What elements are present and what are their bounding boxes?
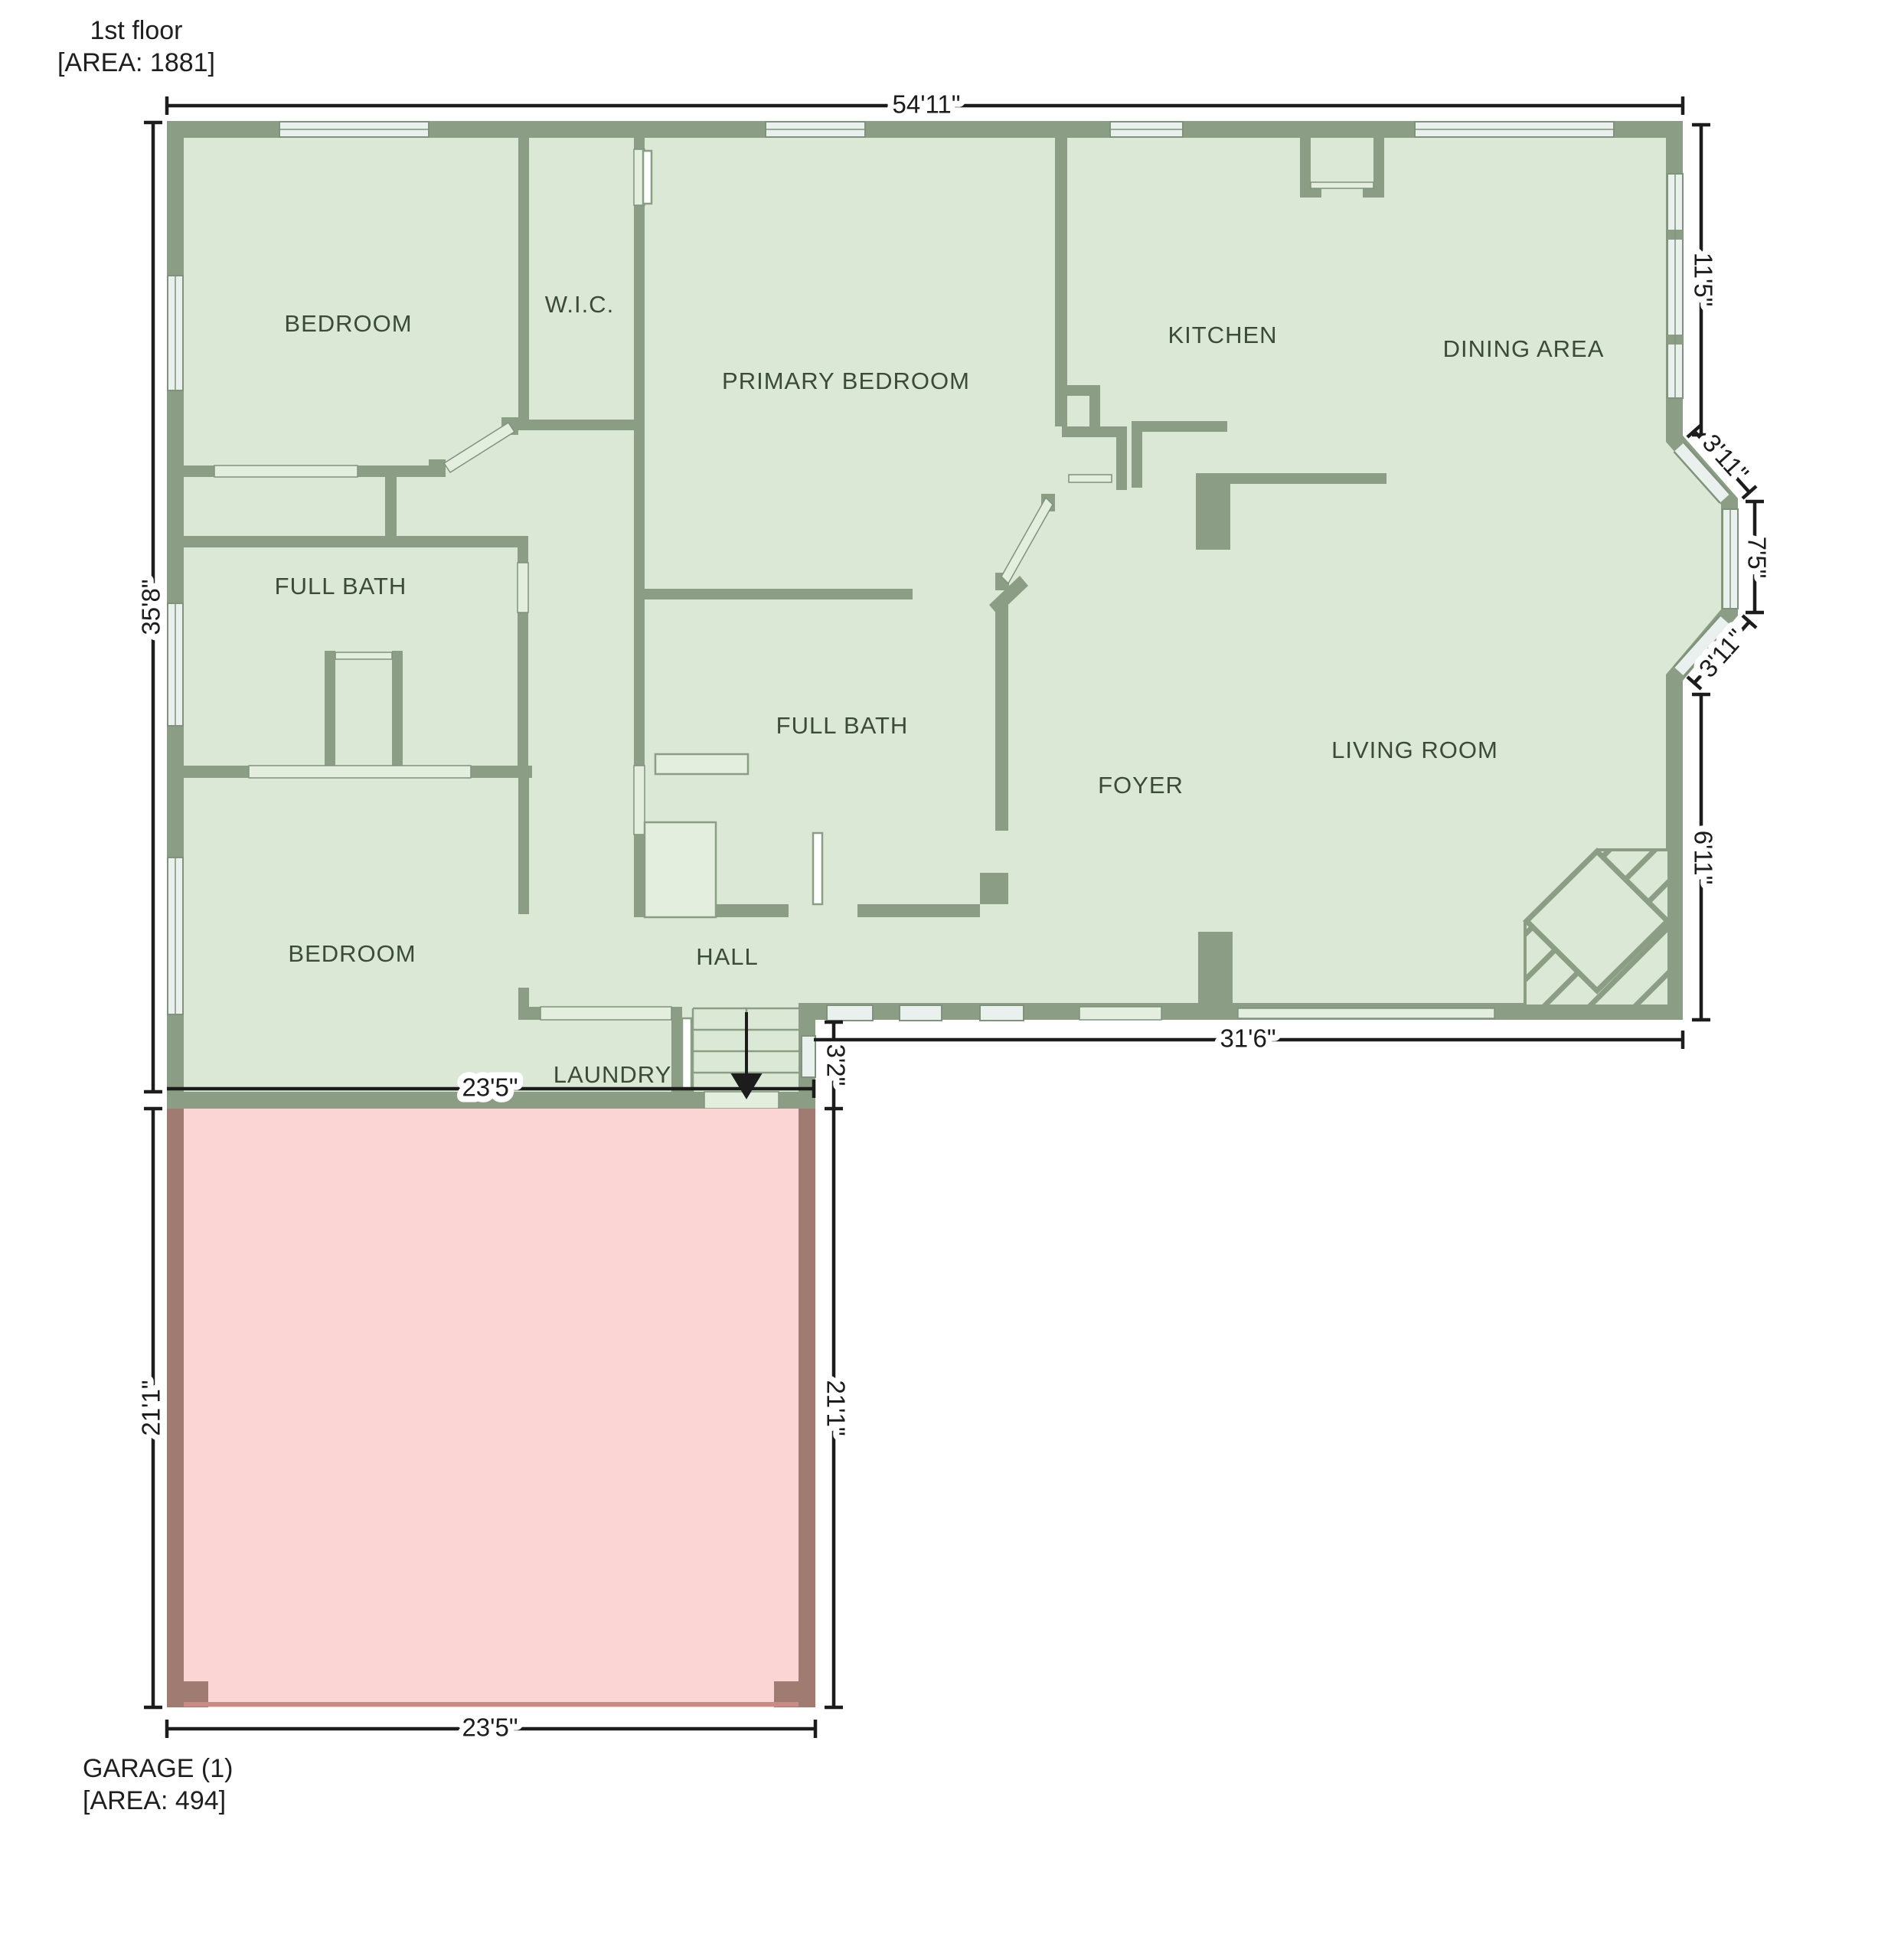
window xyxy=(980,1005,1024,1021)
garage-door-line xyxy=(184,1702,799,1707)
window xyxy=(827,1005,873,1021)
room-label-foyer: FOYER xyxy=(1098,772,1184,799)
room-label-primary-bedroom: PRIMARY BEDROOM xyxy=(722,367,970,394)
window xyxy=(900,1005,942,1021)
dim-garage-top: 23'5" xyxy=(462,1073,518,1102)
bath-door-leaf xyxy=(813,833,822,904)
garage xyxy=(167,1109,815,1707)
room-label-laundry: LAUNDRY xyxy=(554,1061,672,1088)
dim-garage-right: 21'1" xyxy=(821,1380,850,1436)
floor-title: 1st floor xyxy=(90,16,183,45)
dim-top: 54'11" xyxy=(893,90,961,119)
dim-left: 35'8" xyxy=(137,579,165,635)
room-label-kitchen: KITCHEN xyxy=(1168,322,1277,348)
dim-bay-middle: 7'5" xyxy=(1742,537,1771,579)
living-open-edge xyxy=(1238,1008,1494,1018)
floor-plan-canvas: 54'11" 35'8" 21'1" 3'2" 21'1" 23'5" 23'5… xyxy=(0,0,1878,1960)
dim-right-top: 11'5" xyxy=(1689,253,1717,307)
window xyxy=(802,1036,815,1077)
room-label-dining-area: DINING AREA xyxy=(1443,335,1605,362)
stairs-door-leaf xyxy=(682,1018,691,1091)
bath-shower-stall xyxy=(645,822,716,917)
room-label-living-room: LIVING ROOM xyxy=(1331,737,1498,763)
room-label-hall: HALL xyxy=(696,943,759,970)
dim-garage-bottom: 23'5" xyxy=(462,1713,518,1742)
room-label-bedroom-bottom: BEDROOM xyxy=(288,940,416,967)
entry-door-opening xyxy=(1079,1007,1161,1020)
bath-vanity xyxy=(655,754,748,774)
garage-entry-door xyxy=(704,1092,779,1109)
floor-area: [AREA: 1881] xyxy=(57,48,215,77)
garage-floor xyxy=(167,1109,815,1707)
wic-door-leaf xyxy=(643,151,652,204)
dim-living-bottom: 31'6" xyxy=(1220,1024,1275,1053)
room-label-bedroom-top: BEDROOM xyxy=(284,310,412,337)
dim-garage-left: 21'1" xyxy=(137,1380,165,1436)
room-label-full-bath-left: FULL BATH xyxy=(275,573,407,599)
room-label-wic: W.I.C. xyxy=(545,291,614,318)
dim-step: 3'2" xyxy=(821,1044,850,1086)
room-label-full-bath-center: FULL BATH xyxy=(776,712,909,739)
dim-right-bottom: 6'11" xyxy=(1689,831,1717,885)
garage-area: [AREA: 494] xyxy=(83,1786,226,1815)
garage-title: GARAGE (1) xyxy=(83,1754,233,1783)
